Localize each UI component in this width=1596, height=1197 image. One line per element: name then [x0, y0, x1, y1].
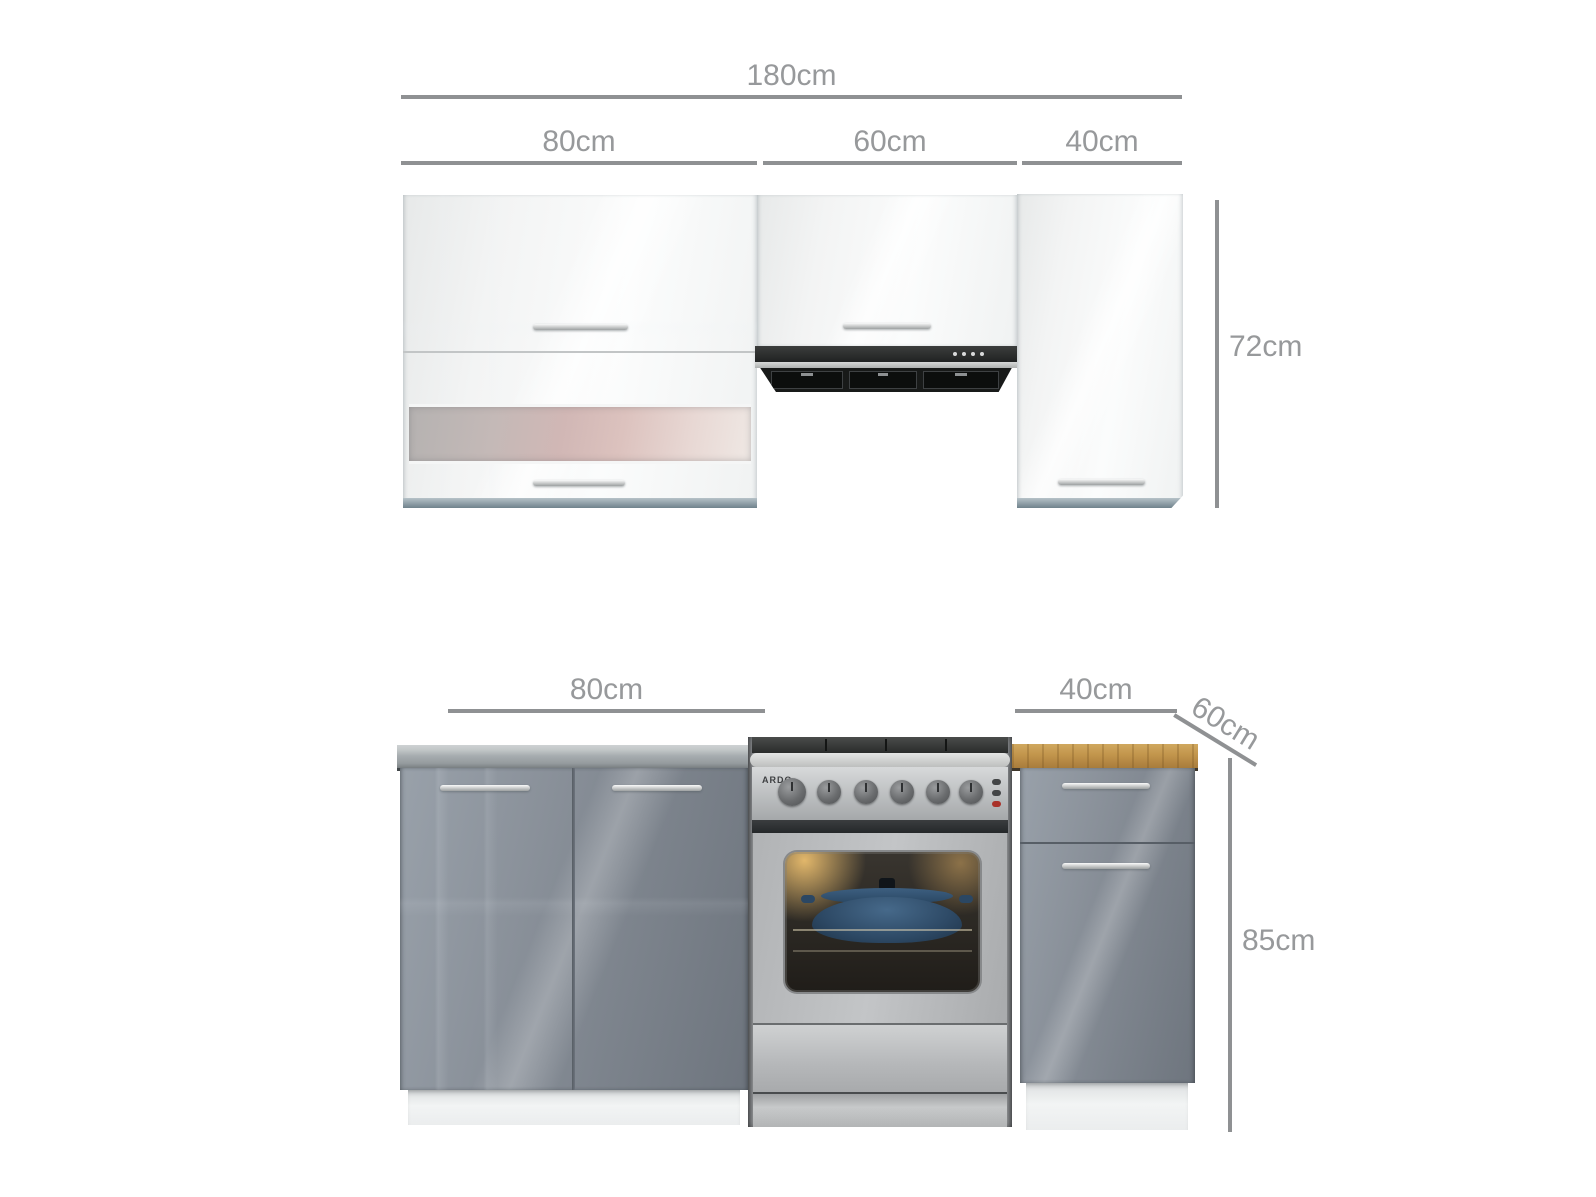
- filter-clip: [801, 373, 812, 376]
- upper-cab80-width-line: [401, 161, 757, 165]
- base-cabinet-40: [1020, 768, 1195, 1083]
- freestanding-cooker: ARDO: [748, 737, 1012, 1127]
- storage-drawer: [753, 1023, 1007, 1092]
- indicator-light-red: [992, 801, 1001, 807]
- cabinet-handle: [1062, 863, 1150, 869]
- cabinet-handle: [1058, 479, 1145, 485]
- plinth: [408, 1090, 740, 1125]
- indicator-light: [992, 790, 1001, 796]
- hood-button: [971, 352, 975, 356]
- cabinet-bottom-edge: [403, 498, 757, 508]
- burner-knob: [926, 780, 950, 804]
- filter-clip: [878, 373, 889, 376]
- cabinet-handle: [843, 323, 931, 329]
- panel-divider-strip: [752, 820, 1008, 833]
- drawer-handle: [1062, 783, 1150, 789]
- lower-height-line: [1228, 758, 1232, 1132]
- upper-height-label: 72cm: [1229, 331, 1349, 363]
- door-seam: [572, 768, 575, 1090]
- upper-cab60-width-line: [763, 161, 1017, 165]
- kitchen-set-dimension-diagram: 180cm 80cm 60cm 40cm 72cm: [0, 0, 1596, 1197]
- oven-door: [753, 833, 1007, 1025]
- lower-cab40-width-label: 40cm: [1015, 674, 1177, 706]
- upper-cab40-width-label: 40cm: [1022, 126, 1182, 158]
- indicator-light: [992, 779, 1001, 785]
- filter-clip: [955, 373, 967, 376]
- cabinet-handle: [612, 785, 702, 791]
- burner-knob: [854, 780, 878, 804]
- lower-height-label: 85cm: [1242, 925, 1362, 957]
- cooker-top-edge: [750, 753, 1010, 767]
- hood-button: [953, 352, 957, 356]
- gas-burner-top: [752, 737, 1008, 753]
- oven-window: [785, 852, 980, 992]
- lower-cab80-width-line: [448, 709, 765, 713]
- drawer-seam: [1020, 842, 1195, 844]
- pot-handle: [959, 895, 973, 903]
- cabinet-handle: [440, 785, 530, 791]
- hood-underside: [755, 368, 1017, 392]
- lower-cab80-width-label: 80cm: [448, 674, 765, 706]
- burner-knob: [890, 780, 914, 804]
- cabinet-handle: [533, 324, 628, 330]
- base-cabinet-80: [400, 768, 748, 1090]
- cabinet-handle: [533, 480, 625, 486]
- upper-cab60-width-label: 60cm: [763, 126, 1017, 158]
- pot-handle: [801, 895, 815, 903]
- hood-steel-strip: [755, 362, 1017, 368]
- burner-grate-divider: [825, 739, 827, 751]
- hood-button: [962, 352, 966, 356]
- cabinet-bottom-edge: [1017, 498, 1183, 508]
- grease-filter: [923, 371, 999, 389]
- hood-front-band: [755, 346, 1017, 362]
- control-panel: ARDO: [752, 767, 1008, 820]
- oven-knob: [778, 778, 806, 806]
- upper-total-width-label: 180cm: [401, 60, 1182, 92]
- upper-cab40-width-line: [1022, 161, 1182, 165]
- grease-filter: [849, 371, 917, 389]
- range-hood: [755, 346, 1017, 392]
- upper-height-line: [1215, 200, 1219, 508]
- burner-knob: [817, 780, 841, 804]
- hood-button: [980, 352, 984, 356]
- oven-rack: [793, 950, 972, 952]
- upper-cab80-width-label: 80cm: [401, 126, 757, 158]
- grease-filter: [771, 371, 843, 389]
- burner-grate-divider: [885, 739, 887, 751]
- wood-worktop: [1012, 744, 1198, 771]
- lower-cab40-width-line: [1015, 709, 1177, 713]
- cooker-kick-panel: [753, 1092, 1007, 1127]
- upper-total-width-line: [401, 95, 1182, 99]
- wall-cabinet-80: [403, 195, 757, 508]
- burner-grate-divider: [945, 739, 947, 751]
- oven-rack: [793, 929, 972, 931]
- wall-cabinet-40: [1017, 194, 1183, 508]
- blue-pot: [812, 897, 962, 943]
- frosted-glass-panel: [409, 404, 751, 464]
- door-seam: [403, 351, 757, 353]
- burner-knob: [959, 780, 983, 804]
- plinth: [1026, 1083, 1188, 1130]
- wall-cabinet-60: [757, 195, 1017, 346]
